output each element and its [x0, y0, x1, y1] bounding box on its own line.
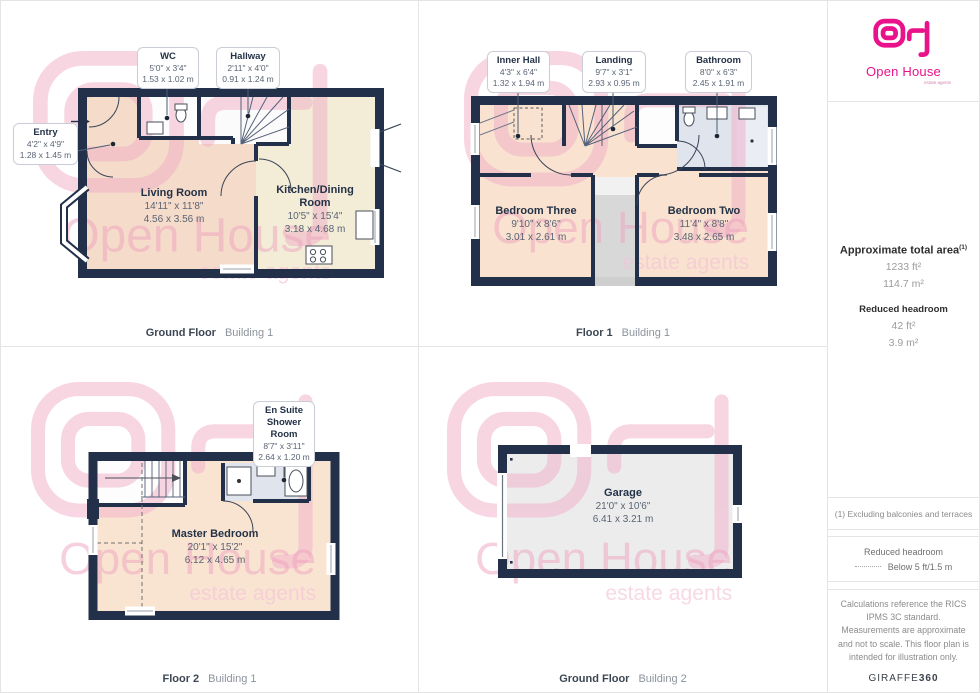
room-metric: 3.01 x 2.61 m — [461, 231, 611, 244]
floorplan-drawing-floor2-b1 — [1, 347, 418, 692]
callout-metric: 2.45 x 1.91 m — [688, 78, 749, 89]
caption-floor: Floor 2 — [163, 673, 200, 685]
callout-hallway: Hallway 2'11" x 4'0" 0.91 x 1.24 m — [216, 47, 280, 89]
floorplan-grid: WC 5'0" x 3'4" 1.53 x 1.02 m Hallway 2'1… — [1, 1, 827, 692]
total-area-footnote-marker: (1) — [959, 244, 967, 251]
total-area-m: 114.7 m² — [883, 278, 924, 290]
room-metric: 4.56 x 3.56 m — [99, 213, 249, 226]
callout-imperial: 2'11" x 4'0" — [219, 63, 277, 74]
callout-metric: 1.28 x 1.45 m — [16, 150, 75, 161]
callout-metric: 0.91 x 1.24 m — [219, 74, 277, 85]
disclaimer-card: Calculations reference the RICS IPMS 3C … — [828, 589, 979, 692]
giraffe360-brand: GIRAFFE360 — [868, 673, 938, 684]
giraffe-suffix: 360 — [919, 673, 939, 684]
logo-tagline-text: estate agents — [924, 80, 951, 85]
open-house-logo-icon — [872, 18, 936, 62]
legend-card: Reduced headroom Below 5 ft/1.5 m — [828, 536, 979, 582]
callout-room-name: Landing — [585, 55, 643, 67]
dotted-line-icon — [855, 566, 881, 567]
callout-metric: 1.32 x 1.94 m — [490, 78, 547, 89]
reduced-headroom-title: Reduced headroom — [859, 304, 948, 315]
reduced-headroom-ft: 42 ft² — [892, 320, 916, 332]
panel-caption: Floor 2Building 1 — [1, 673, 418, 685]
giraffe-name: GIRAFFE — [868, 673, 918, 684]
callout-inner-hall: Inner Hall 4'3" x 6'4" 1.32 x 1.94 m — [487, 51, 550, 93]
room-name: Bedroom Three — [461, 205, 611, 218]
panel-floor-2-building-1: En Suite Shower Room 8'7" x 3'11" 2.64 x… — [1, 347, 418, 692]
callout-imperial: 4'2" x 4'9" — [16, 139, 75, 150]
info-sidebar: Open House estate agents Approximate tot… — [827, 1, 979, 692]
reduced-headroom-m: 3.9 m² — [889, 337, 919, 349]
callout-imperial: 8'7" x 3'11" — [256, 441, 312, 452]
room-imperial: 14'11" x 11'8" — [99, 200, 249, 213]
callout-imperial: 5'0" x 3'4" — [140, 63, 196, 74]
room-name: Bedroom Two — [629, 205, 779, 218]
callout-wc: WC 5'0" x 3'4" 1.53 x 1.02 m — [137, 47, 199, 89]
callout-room-name: Entry — [16, 127, 75, 139]
caption-building: Building 1 — [622, 327, 670, 339]
panel-caption: Floor 1Building 1 — [419, 327, 827, 339]
room-label-bedroom-two: Bedroom Two 11'4" x 8'8" 3.48 x 2.65 m — [629, 205, 779, 244]
room-imperial: 11'4" x 8'8" — [629, 218, 779, 231]
legend-item-text: Below 5 ft/1.5 m — [888, 562, 953, 572]
footnote-card: (1) Excluding balconies and terraces — [828, 497, 979, 530]
legend-row: Below 5 ft/1.5 m — [855, 562, 953, 572]
room-name: Garage — [548, 487, 698, 500]
caption-building: Building 2 — [638, 673, 686, 685]
caption-floor: Ground Floor — [559, 673, 629, 685]
total-area-ft: 1233 ft² — [886, 261, 922, 273]
total-area-title: Approximate total area(1) — [840, 244, 967, 257]
panel-ground-floor-building-2: Garage 21'0" x 10'6" 6.41 x 3.21 m Groun… — [419, 347, 827, 692]
callout-en-suite-shower-room: En Suite Shower Room 8'7" x 3'11" 2.64 x… — [253, 401, 315, 467]
panel-caption: Ground FloorBuilding 2 — [419, 673, 827, 685]
room-metric: 3.18 x 4.68 m — [261, 223, 369, 236]
room-label-living-room: Living Room 14'11" x 11'8" 4.56 x 3.56 m — [99, 187, 249, 226]
callout-room-name: Bathroom — [688, 55, 749, 67]
room-name: Kitchen/Dining Room — [261, 184, 369, 210]
callout-room-name: Hallway — [219, 51, 277, 63]
floorplan-drawing-ground-floor-b1 — [1, 1, 418, 346]
room-imperial: 10'5" x 15'4" — [261, 210, 369, 223]
disclaimer-text: Calculations reference the RICS IPMS 3C … — [838, 598, 969, 664]
room-label-bedroom-three: Bedroom Three 9'10" x 8'6" 3.01 x 2.61 m — [461, 205, 611, 244]
legend-title: Reduced headroom — [864, 547, 943, 557]
panel-ground-floor-building-1: WC 5'0" x 3'4" 1.53 x 1.02 m Hallway 2'1… — [1, 1, 418, 346]
callout-room-name: En Suite Shower Room — [256, 405, 312, 441]
caption-building: Building 1 — [225, 327, 273, 339]
total-area-title-text: Approximate total area — [840, 244, 959, 256]
room-name: Master Bedroom — [140, 528, 290, 541]
room-label-kitchen-dining: Kitchen/Dining Room 10'5" x 15'4" 3.18 x… — [261, 184, 369, 236]
room-metric: 6.12 x 4.65 m — [140, 554, 290, 567]
callout-room-name: WC — [140, 51, 196, 63]
footnote-text: (1) Excluding balconies and terraces — [835, 509, 973, 519]
callout-metric: 1.53 x 1.02 m — [140, 74, 196, 85]
caption-floor: Ground Floor — [146, 327, 216, 339]
room-imperial: 21'0" x 10'6" — [548, 500, 698, 513]
callout-room-name: Inner Hall — [490, 55, 547, 67]
callout-bathroom: Bathroom 8'0" x 6'3" 2.45 x 1.91 m — [685, 51, 752, 93]
logo-card: Open House estate agents — [828, 1, 979, 102]
callout-imperial: 4'3" x 6'4" — [490, 67, 547, 78]
callout-imperial: 9'7" x 3'1" — [585, 67, 643, 78]
callout-metric: 2.93 x 0.95 m — [585, 78, 643, 89]
panel-floor-1-building-1: Inner Hall 4'3" x 6'4" 1.32 x 1.94 m Lan… — [419, 1, 827, 346]
room-name: Living Room — [99, 187, 249, 200]
room-label-garage: Garage 21'0" x 10'6" 6.41 x 3.21 m — [548, 487, 698, 526]
callout-entry: Entry 4'2" x 4'9" 1.28 x 1.45 m — [13, 123, 78, 165]
floorplan-page: WC 5'0" x 3'4" 1.53 x 1.02 m Hallway 2'1… — [0, 0, 980, 693]
room-imperial: 9'10" x 8'6" — [461, 218, 611, 231]
room-metric: 3.48 x 2.65 m — [629, 231, 779, 244]
panel-caption: Ground FloorBuilding 1 — [1, 327, 418, 339]
caption-floor: Floor 1 — [576, 327, 613, 339]
callout-landing: Landing 9'7" x 3'1" 2.93 x 0.95 m — [582, 51, 646, 93]
room-metric: 6.41 x 3.21 m — [548, 513, 698, 526]
room-imperial: 20'1" x 15'2" — [140, 541, 290, 554]
room-label-master-bedroom: Master Bedroom 20'1" x 15'2" 6.12 x 4.65… — [140, 528, 290, 567]
caption-building: Building 1 — [208, 673, 256, 685]
logo-brand-text: Open House — [866, 64, 941, 79]
area-summary-card: Approximate total area(1) 1233 ft² 114.7… — [828, 102, 979, 491]
callout-imperial: 8'0" x 6'3" — [688, 67, 749, 78]
callout-metric: 2.64 x 1.20 m — [256, 452, 312, 463]
